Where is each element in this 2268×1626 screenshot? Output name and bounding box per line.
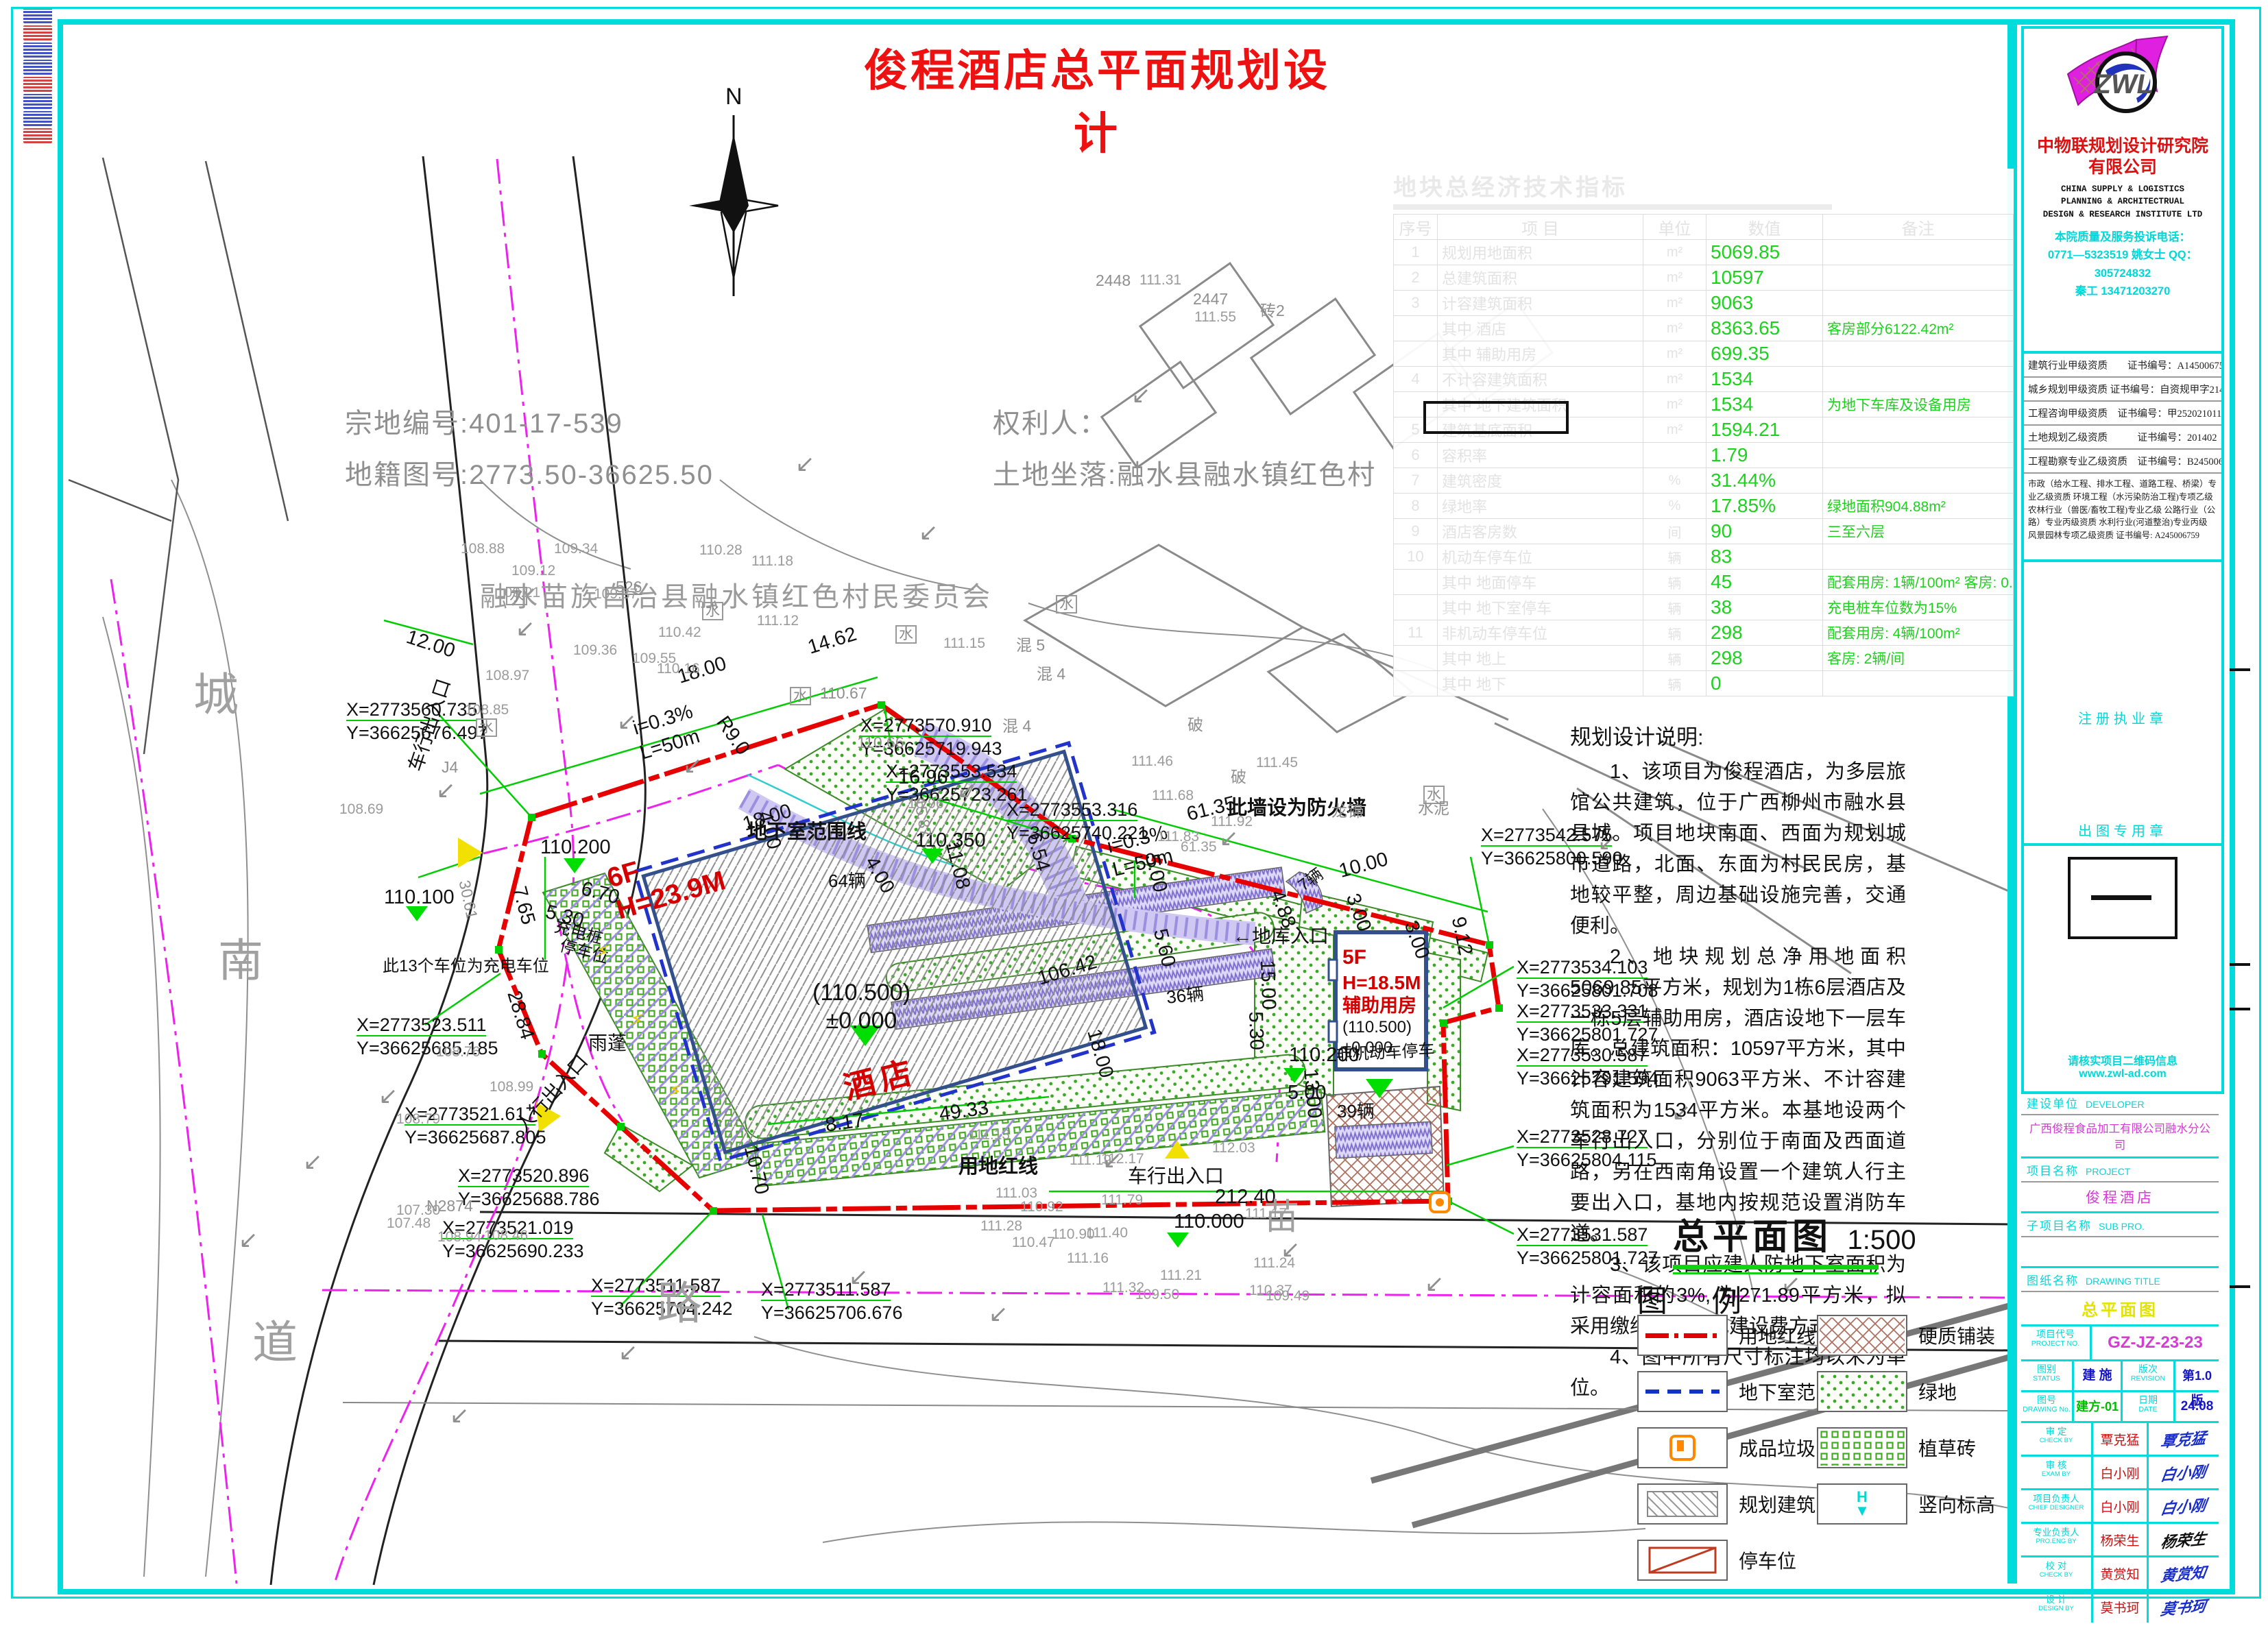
map-annotation: 18.00 bbox=[1083, 1027, 1116, 1080]
indicator-row: 3计容建筑面积m²9063 bbox=[1394, 291, 2014, 316]
building-hatch-symbol bbox=[1647, 1491, 1718, 1517]
map-annotation: 非机动车停车 bbox=[1336, 1042, 1435, 1064]
indicator-cell-item: 其中 辅助用房 bbox=[1438, 341, 1643, 367]
indicator-cell-value: 38 bbox=[1706, 595, 1823, 620]
signature-row: 审 核EXAM BY白小刚白小刚 bbox=[2021, 1457, 2219, 1490]
redline-symbol bbox=[1645, 1333, 1720, 1338]
col-header: 数值 bbox=[1706, 215, 1823, 240]
indicator-cell-no: 9 bbox=[1394, 519, 1438, 544]
indicator-cell-no: 10 bbox=[1394, 544, 1438, 570]
indicator-cell-remark bbox=[1823, 417, 2014, 443]
map-annotation: 水 bbox=[476, 718, 497, 737]
indicator-row: 9酒店客房数间90三至六层 bbox=[1394, 519, 2014, 544]
map-annotation: 109.34 bbox=[554, 542, 598, 556]
indicator-cell-remark bbox=[1823, 367, 2014, 392]
map-annotation: 用地红线 bbox=[958, 1157, 1038, 1177]
map-annotation: 此13个车位为充电车位 bbox=[383, 958, 549, 975]
indicator-cell-unit bbox=[1643, 443, 1706, 468]
legend-item-green: 绿地 bbox=[1817, 1371, 1995, 1412]
revision-value: 第1.0版 bbox=[2175, 1361, 2219, 1390]
map-annotation: 5.30 bbox=[1245, 1011, 1266, 1050]
indicator-cell-unit: 辆 bbox=[1643, 595, 1706, 620]
signature-role-label: 专业负责人PRO.ENG BY bbox=[2021, 1524, 2093, 1555]
map-annotation: ↙ bbox=[239, 1228, 258, 1252]
legend-right-column: 硬质铺装 绿地 植草砖 H ▼ 竖向标高 bbox=[1817, 1315, 1995, 1540]
signer-name: 白小刚 bbox=[2093, 1457, 2149, 1488]
indicator-cell-unit: 辆 bbox=[1643, 544, 1706, 570]
map-annotation: 14.62 bbox=[806, 624, 859, 658]
map-annotation: 109.12 bbox=[511, 563, 555, 578]
col-header: 单位 bbox=[1643, 215, 1706, 240]
indicator-cell-remark bbox=[1823, 265, 2014, 291]
credential-row: 城乡规划甲级资质 证书编号：自资规甲字21450400 bbox=[2024, 378, 2221, 402]
map-annotation: 111.18 bbox=[751, 554, 793, 568]
map-annotation: 16.96 bbox=[908, 797, 944, 811]
indicator-cell-unit: % bbox=[1643, 468, 1706, 494]
indicator-cell-value: 5069.85 bbox=[1706, 240, 1823, 265]
map-annotation: ↙ bbox=[957, 779, 977, 802]
indicator-cell-remark bbox=[1823, 341, 2014, 367]
planning-note-1: 1、该项目为俊程酒店，为多层旅馆公共建筑，位于广西柳州市融水县县城。项目地块南面… bbox=[1570, 757, 1906, 942]
map-annotation: 龙锦 bbox=[1331, 803, 1363, 819]
map-annotation: 110.28 bbox=[699, 543, 743, 557]
indicator-cell-no: 1 bbox=[1394, 240, 1438, 265]
map-annotation: 110.66 bbox=[857, 735, 904, 751]
indicator-cell-item: 建筑密度 bbox=[1438, 468, 1643, 494]
map-annotation: Y=36625690.233 bbox=[442, 1242, 583, 1261]
map-annotation: 15.00 bbox=[1257, 960, 1279, 1010]
trash-bin-symbol bbox=[1669, 1435, 1696, 1461]
map-annotation: 111.46 bbox=[1131, 754, 1173, 768]
indicator-cell-remark bbox=[1823, 443, 2014, 468]
map-annotation: ⚡ bbox=[665, 1080, 684, 1103]
indicator-cell-remark bbox=[1823, 544, 2014, 570]
credential-row: 工程勘察专业乙级资质 证书编号：B245006759 bbox=[2024, 450, 2221, 474]
indicator-cell-item: 绿地率 bbox=[1438, 494, 1643, 519]
indicator-cell-item: 不计容建筑面积 bbox=[1438, 367, 1643, 392]
signature-row: 设 计DESIGN BY莫书珂莫书珂 bbox=[2021, 1591, 2219, 1623]
indicator-cell-unit: m² bbox=[1643, 392, 1706, 417]
map-annotation: 水泥 bbox=[1418, 801, 1449, 816]
map-annotation: 110.000 bbox=[1174, 1212, 1244, 1232]
qr-note-1: 请核实项目二维码信息 bbox=[2024, 1052, 2221, 1068]
indicator-cell-no: 4 bbox=[1394, 367, 1438, 392]
map-annotation: 5.60 bbox=[1150, 927, 1179, 969]
map-annotation: 2447 bbox=[1193, 291, 1228, 307]
issue-stamp-label: 出图专用章 bbox=[2024, 820, 2221, 840]
project-name: 俊程酒店 bbox=[2021, 1182, 2219, 1211]
map-annotation: ↙ bbox=[795, 452, 815, 476]
indicator-cell-remark: 配套用房: 1辆/100m² 客房: 0.6辆/间 bbox=[1823, 570, 2014, 595]
indicator-cell-item: 非机动车停车位 bbox=[1438, 620, 1643, 646]
map-annotation: 水 bbox=[790, 687, 811, 705]
credential-row: 市政（给水工程、排水工程、道路工程、桥梁）专业乙级资质 环境工程（水污染防治工程… bbox=[2024, 474, 2221, 546]
signature-role-label: 设 计DESIGN BY bbox=[2021, 1591, 2093, 1623]
map-annotation: 地下室范围线 bbox=[747, 823, 867, 842]
map-annotation: 64辆 bbox=[828, 872, 866, 890]
map-annotation: X=2773560.735 bbox=[346, 701, 477, 721]
map-annotation: 107.48 bbox=[387, 1216, 431, 1230]
signature: 黄赏知 bbox=[2146, 1554, 2221, 1592]
map-annotation: ↙ bbox=[1425, 1272, 1445, 1296]
indicators-header-row: 序号 项 目 单位 数值 备注 bbox=[1394, 215, 2014, 240]
map-annotation: ↙ bbox=[1131, 384, 1151, 407]
map-annotation: 111.40 bbox=[1086, 1226, 1128, 1240]
indicator-cell-no bbox=[1394, 646, 1438, 671]
map-annotation: 108.69 bbox=[339, 802, 383, 816]
signature: 覃克猛 bbox=[2146, 1420, 2221, 1458]
subproject-section: 子项目名称SUB PRO. bbox=[2021, 1213, 2219, 1268]
company-block: ZWL 中物联规划设计研究院 有限公司 CHINA SUPPLY & LOGIS… bbox=[2021, 26, 2224, 354]
project-section: 项目名称PROJECT 俊程酒店 bbox=[2021, 1158, 2219, 1213]
credentials-box: 建筑行业甲级资质 证书编号：A145006752城乡规划甲级资质 证书编号：自资… bbox=[2021, 351, 2224, 562]
map-annotation: 110.37 bbox=[1249, 1283, 1292, 1298]
drawingno-date-row: 图号DRAWING No. 建方-01 日期DATE 24.08 bbox=[2021, 1392, 2219, 1423]
map-annotation: 109.21 bbox=[496, 585, 540, 600]
map-annotation: 108.94 bbox=[437, 1230, 481, 1244]
map-annotation: ↙ bbox=[450, 1404, 470, 1427]
map-annotation: 混 4 bbox=[1002, 718, 1031, 734]
map-annotation: 110.200 bbox=[540, 838, 611, 858]
legend: 图 例 用地红线 地下室范围 成品垃圾回收桶 规划建筑 停车位 bbox=[1637, 1276, 2007, 1333]
planning-note-2: 2、地块规划总净用地面积5069.85平方米，规划为1栋6层酒店及一栋5层辅助用… bbox=[1570, 942, 1906, 1250]
map-annotation: ↙ bbox=[617, 710, 637, 733]
map-annotation: 2448 bbox=[1096, 273, 1131, 289]
indicator-cell-value: 298 bbox=[1706, 620, 1823, 646]
indicator-cell-no: 3 bbox=[1394, 291, 1438, 316]
indicator-cell-remark: 为地下车库及设备用房 bbox=[1823, 392, 2014, 417]
map-annotation: 109.37 bbox=[594, 587, 638, 601]
map-annotation: 111.16 bbox=[1067, 1251, 1109, 1265]
map-annotation: 水 bbox=[702, 602, 723, 620]
indicator-cell-remark: 充电桩车位数为15% bbox=[1823, 595, 2014, 620]
map-annotation: 111.15 bbox=[943, 636, 985, 651]
map-annotation: 砖2 bbox=[1260, 303, 1285, 319]
indicator-cell-no bbox=[1394, 570, 1438, 595]
indicator-cell-unit: 辆 bbox=[1643, 570, 1706, 595]
indicator-cell-remark: 客房: 2辆/间 bbox=[1823, 646, 2014, 671]
indicator-cell-unit: 间 bbox=[1643, 519, 1706, 544]
indicator-row: 1规划用地面积m²5069.85 bbox=[1394, 240, 2014, 265]
map-annotation: 111.79 bbox=[1101, 1193, 1143, 1207]
developer-name: 广西俊程食品加工有限公司融水分公司 bbox=[2021, 1115, 2219, 1156]
indicator-row: 11非机动车停车位辆298配套用房: 4辆/100m² bbox=[1394, 620, 2014, 646]
map-annotation: 61.35 bbox=[1181, 840, 1217, 854]
indicator-cell-remark bbox=[1823, 291, 2014, 316]
map-annotation: 110.92 bbox=[1020, 1200, 1063, 1214]
map-annotation: Y=36625688.786 bbox=[458, 1190, 599, 1209]
map-annotation: X=2773520.896 bbox=[458, 1167, 589, 1187]
map-annotation: 7辆 bbox=[1296, 866, 1326, 895]
indicator-cell-unit: m² bbox=[1643, 341, 1706, 367]
indicator-cell-item: 其中 地上 bbox=[1438, 646, 1643, 671]
map-annotation: ↙ bbox=[1281, 1238, 1301, 1261]
map-annotation: 破 bbox=[1187, 717, 1203, 733]
plan-title-underline bbox=[1673, 1265, 1879, 1270]
developer-section: 建设单位DEVELOPER 广西俊程食品加工有限公司融水分公司 bbox=[2021, 1091, 2219, 1158]
map-annotation: ↙ bbox=[849, 1265, 869, 1289]
map-annotation: J4 bbox=[442, 760, 458, 775]
legend-item-elevation: H ▼ 竖向标高 bbox=[1817, 1483, 1995, 1525]
map-annotation: 110.16 bbox=[657, 662, 700, 676]
map-annotation: 111.31 bbox=[1139, 273, 1181, 287]
map-annotation: X=2773511.587 bbox=[761, 1281, 891, 1301]
map-annotation: 110.47 bbox=[1012, 1235, 1055, 1250]
indicator-row: 7建筑密度%31.44% bbox=[1394, 468, 2014, 494]
signature-role-label: 审 核EXAM BY bbox=[2021, 1457, 2093, 1488]
indicators-title-underline bbox=[1393, 204, 1832, 210]
indicator-row: 其中 地面停车辆45配套用房: 1辆/100m² 客房: 0.6辆/间 bbox=[1394, 570, 2014, 595]
project-no-section: 项目代号PROJECT NO. GZ-JZ-23-23 bbox=[2021, 1326, 2219, 1361]
signature: 白小刚 bbox=[2146, 1453, 2221, 1492]
indicator-cell-unit: m² bbox=[1643, 316, 1706, 341]
indicator-cell-value: 90 bbox=[1706, 519, 1823, 544]
map-annotation: 111.12 bbox=[757, 614, 799, 628]
map-annotation: 8.17 bbox=[824, 1111, 865, 1136]
map-annotation: 3.00 bbox=[1342, 891, 1375, 934]
map-annotation: ↙ bbox=[683, 754, 703, 777]
signature-rows: 审 定CHECK BY覃克猛覃克猛审 核EXAM BY白小刚白小刚项目负责人CH… bbox=[2021, 1423, 2219, 1623]
map-annotation: X=2773523.511 bbox=[357, 1016, 486, 1036]
map-annotation: 混 5 bbox=[1016, 638, 1045, 653]
title-block: 建设单位DEVELOPER 广西俊程食品加工有限公司融水分公司 项目名称PROJ… bbox=[2021, 1091, 2219, 1575]
map-annotation: 水 bbox=[895, 625, 917, 644]
map-annotation: ↙ bbox=[989, 1302, 1009, 1326]
map-annotation: 10.00 bbox=[1337, 849, 1390, 882]
signature: 莫书珂 bbox=[2146, 1588, 2221, 1626]
map-annotation: ↙ bbox=[303, 1150, 323, 1174]
map-annotation: 12.00 bbox=[404, 627, 457, 662]
map-annotation: 109.50 bbox=[1135, 1287, 1179, 1302]
indicator-cell-remark: 配套用房: 4辆/100m² bbox=[1823, 620, 2014, 646]
map-annotation: ↙ bbox=[1219, 827, 1239, 850]
indicator-cell-unit: 辆 bbox=[1643, 671, 1706, 696]
indicator-cell-no: 6 bbox=[1394, 443, 1438, 468]
legend-title: 图 例 bbox=[1637, 1276, 2007, 1320]
signature-row: 审 定CHECK BY覃克猛覃克猛 bbox=[2021, 1423, 2219, 1457]
qr-note-2: www.zwl-ad.com bbox=[2024, 1068, 2221, 1080]
indicator-cell-remark bbox=[1823, 468, 2014, 494]
parking-symbol bbox=[1648, 1546, 1717, 1574]
indicator-cell-unit: m² bbox=[1643, 291, 1706, 316]
map-annotation: X=2773553.316 bbox=[1006, 801, 1137, 821]
indicator-cell-item: 机动车停车位 bbox=[1438, 544, 1643, 570]
grassbrick-symbol bbox=[1820, 1430, 1905, 1466]
signature: 白小刚 bbox=[2146, 1487, 2221, 1525]
company-name-cn-2: 有限公司 bbox=[2024, 157, 2221, 178]
map-annotation: 城 bbox=[193, 672, 239, 717]
map-annotation: 111.21 bbox=[1160, 1268, 1202, 1283]
indicator-cell-no bbox=[1394, 595, 1438, 620]
signature-role-label: 校 对CHECK BY bbox=[2021, 1557, 2093, 1589]
col-header: 序号 bbox=[1394, 215, 1438, 240]
indicator-cell-value: 83 bbox=[1706, 544, 1823, 570]
indicator-cell-no: 11 bbox=[1394, 620, 1438, 646]
indicator-cell-value: 298 bbox=[1706, 646, 1823, 671]
indicator-cell-remark bbox=[1823, 240, 2014, 265]
indicator-cell-item: 其中 地下室停车 bbox=[1438, 595, 1643, 620]
indicator-cell-unit: % bbox=[1643, 494, 1706, 519]
qr-placeholder bbox=[2068, 857, 2177, 939]
company-phone: 本院质量及服务投诉电话： 0771—5323519 姚女士 QQ： 305724… bbox=[2024, 228, 2221, 301]
indicator-cell-no: 7 bbox=[1394, 468, 1438, 494]
plan-title-text: 总平面图 bbox=[1673, 1217, 1832, 1257]
map-annotation: 10.70 bbox=[740, 1143, 772, 1196]
credentials-list: 建筑行业甲级资质 证书编号：A145006752城乡规划甲级资质 证书编号：自资… bbox=[2024, 354, 2221, 546]
map-annotation: 混 4 bbox=[1037, 666, 1065, 682]
drawing-title-value: 总平面图 bbox=[2021, 1292, 2219, 1324]
map-annotation: 111.55 bbox=[1194, 310, 1236, 324]
map-annotation: R9.0 bbox=[712, 713, 753, 759]
plan-title: 总平面图 1:500 bbox=[1673, 1208, 1916, 1274]
signer-name: 白小刚 bbox=[2093, 1490, 2149, 1522]
indicator-cell-item: 其中 地面停车 bbox=[1438, 570, 1643, 595]
signature-row: 项目负责人CHIEF DESIGNER白小刚白小刚 bbox=[2021, 1490, 2219, 1524]
indicator-cell-no: 2 bbox=[1394, 265, 1438, 291]
map-annotation: 36辆 bbox=[1166, 984, 1205, 1006]
map-annotation: 111.28 bbox=[980, 1219, 1022, 1233]
map-annotation: 雨蓬 bbox=[588, 1034, 627, 1053]
col-header: 备注 bbox=[1823, 215, 2014, 240]
planning-notes-title: 规划设计说明: bbox=[1570, 721, 1906, 754]
map-annotation: 108.88 bbox=[461, 542, 505, 556]
indicator-cell-no: 8 bbox=[1394, 494, 1438, 519]
indicator-row: 其中 酒店m²8363.65客房部分6122.42m² bbox=[1394, 316, 2014, 341]
indicator-row: 10机动车停车位辆83 bbox=[1394, 544, 2014, 570]
map-annotation: 110.100 bbox=[384, 888, 455, 908]
legend-item-grassbrick: 植草砖 bbox=[1817, 1427, 1995, 1468]
subproject-name bbox=[2021, 1237, 2219, 1266]
map-annotation: 111.03 bbox=[996, 1186, 1037, 1200]
map-annotation: ←地库入口 bbox=[1233, 927, 1329, 946]
indicator-row: 其中 地下辆0 bbox=[1394, 671, 2014, 696]
map-annotation: 111.17 bbox=[1245, 1206, 1287, 1221]
indicator-cell-item: 计容建筑面积 bbox=[1438, 291, 1643, 316]
license-stamp-label: 注册执业章 bbox=[2024, 707, 2221, 727]
indicator-cell-no bbox=[1394, 341, 1438, 367]
map-annotation: 道 bbox=[252, 1320, 298, 1365]
indicator-cell-remark: 客房部分6122.42m² bbox=[1823, 316, 2014, 341]
indicator-cell-value: 1534 bbox=[1706, 392, 1823, 417]
indicator-cell-item: 酒店客房数 bbox=[1438, 519, 1643, 544]
title-block-panel: ZWL 中物联规划设计研究院 有限公司 CHINA SUPPLY & LOGIS… bbox=[2018, 21, 2223, 1582]
basement-line-symbol bbox=[1645, 1390, 1720, 1394]
indicators-title: 地块总经济技术指标 bbox=[1393, 169, 2014, 202]
map-annotation: 39辆 bbox=[1337, 1102, 1375, 1120]
map-annotation: 49.33 bbox=[938, 1098, 990, 1125]
company-name-en: CHINA SUPPLY & LOGISTICS PLANNING & ARCH… bbox=[2024, 183, 2221, 221]
map-annotation: 108.79 bbox=[396, 1112, 440, 1126]
map-annotation: 110.67 bbox=[820, 685, 867, 701]
indicator-cell-value: 1534 bbox=[1706, 367, 1823, 392]
map-annotation: 111.45 bbox=[1256, 755, 1298, 770]
plan-scale: 1:500 bbox=[1847, 1225, 1916, 1255]
map-annotation: ⚡ bbox=[627, 1009, 646, 1032]
indicator-cell-item: 总建筑面积 bbox=[1438, 265, 1643, 291]
legend-item-paving: 硬质铺装 bbox=[1817, 1315, 1995, 1356]
indicator-row: 8绿地率%17.85%绿地面积904.88m² bbox=[1394, 494, 2014, 519]
map-annotation: ↙ bbox=[516, 617, 535, 640]
indicator-cell-no bbox=[1394, 671, 1438, 696]
indicator-cell-item: 容积率 bbox=[1438, 443, 1643, 468]
company-logo: ZWL bbox=[2054, 33, 2191, 136]
map-annotation: 4.88 bbox=[1267, 888, 1299, 931]
map-annotation: 112.03 bbox=[1212, 1141, 1255, 1155]
map-annotation: 车行出入口 bbox=[1128, 1167, 1224, 1186]
map-annotation: ↙ bbox=[436, 779, 456, 802]
map-annotation: 28.84 bbox=[503, 988, 537, 1042]
map-annotation: 108.85 bbox=[465, 703, 509, 717]
signature-role-label: 审 定CHECK BY bbox=[2021, 1423, 2093, 1455]
map-annotation: 9.12 bbox=[1448, 915, 1475, 957]
company-name-cn-1: 中物联规划设计研究院 bbox=[2024, 136, 2221, 157]
map-annotation: 13.00 bbox=[1300, 1068, 1324, 1119]
map-annotation: 3.00 bbox=[1401, 919, 1433, 962]
map-annotation: ↙ bbox=[919, 521, 939, 544]
indicator-cell-unit: 辆 bbox=[1643, 646, 1706, 671]
indicator-cell-value: 699.35 bbox=[1706, 341, 1823, 367]
map-annotation: 4.00 bbox=[861, 853, 897, 897]
map-annotation: 110.42 bbox=[658, 625, 701, 640]
indicator-cell-unit: 辆 bbox=[1643, 620, 1706, 646]
indicator-cell-item: 其中 地下 bbox=[1438, 671, 1643, 696]
indicators-body: 1规划用地面积m²5069.852总建筑面积m²105973计容建筑面积m²90… bbox=[1394, 240, 2014, 696]
svg-text:ZWL: ZWL bbox=[2092, 69, 2156, 99]
drawing-title-section: 图纸名称DRAWING TITLE 总平面图 bbox=[2021, 1268, 2219, 1326]
credential-row: 建筑行业甲级资质 证书编号：A145006752 bbox=[2024, 354, 2221, 378]
green-symbol bbox=[1820, 1374, 1905, 1409]
map-annotation: 水 bbox=[1056, 595, 1077, 614]
indicator-row: 其中 辅助用房m²699.35 bbox=[1394, 341, 2014, 367]
indicator-cell-unit: m² bbox=[1643, 417, 1706, 443]
credential-row: 工程咨询甲级资质 证书编号：甲252021011160 bbox=[2024, 402, 2221, 426]
indicator-row: 4不计容建筑面积m²1534 bbox=[1394, 367, 2014, 392]
map-annotation: 破 bbox=[1231, 769, 1246, 785]
indicator-cell-remark: 绿地面积904.88m² bbox=[1823, 494, 2014, 519]
indicator-cell-value: 1594.21 bbox=[1706, 417, 1823, 443]
signer-name: 莫书珂 bbox=[2093, 1591, 2149, 1623]
map-annotation: 108.76 bbox=[436, 1045, 480, 1059]
drawing-no-value: 建方-01 bbox=[2074, 1392, 2123, 1421]
indicator-cell-value: 17.85% bbox=[1706, 494, 1823, 519]
indicator-cell-no bbox=[1394, 316, 1438, 341]
qr-line bbox=[2091, 895, 2151, 900]
indicator-row: 6容积率1.79 bbox=[1394, 443, 2014, 468]
indicator-cell-item: 其中 酒店 bbox=[1438, 316, 1643, 341]
indicator-row: 2总建筑面积m²10597 bbox=[1394, 265, 2014, 291]
map-annotation: 108.46 bbox=[484, 1228, 528, 1243]
indicator-row: 其中 地下室停车辆38充电桩车位数为15% bbox=[1394, 595, 2014, 620]
map-annotation: ↙ bbox=[618, 1341, 638, 1364]
indicator-cell-remark bbox=[1823, 671, 2014, 696]
status-value: 建 施 bbox=[2074, 1361, 2123, 1390]
signature-row: 专业负责人PRO.ENG BY杨荣生杨荣生 bbox=[2021, 1524, 2219, 1557]
map-annotation: Y=36625706.676 bbox=[761, 1304, 902, 1322]
map-annotation: 108.99 bbox=[490, 1080, 533, 1094]
signer-name: 黄赏知 bbox=[2093, 1557, 2149, 1589]
indicator-cell-value: 1.79 bbox=[1706, 443, 1823, 468]
map-annotation: 6.70 bbox=[579, 879, 621, 908]
date-value: 24.08 bbox=[2175, 1392, 2219, 1421]
col-header: 项 目 bbox=[1438, 215, 1643, 240]
map-annotation: ↙ bbox=[1102, 1149, 1122, 1172]
indicator-cell-value: 9063 bbox=[1706, 291, 1823, 316]
qr-area: 请核实项目二维码信息 www.zwl-ad.com bbox=[2021, 843, 2224, 1094]
map-annotation: 111.68 bbox=[1152, 788, 1194, 803]
indicator-cell-unit: m² bbox=[1643, 240, 1706, 265]
legend-item-parking: 停车位 bbox=[1637, 1540, 1873, 1581]
stamp-area: 注册执业章 出图专用章 bbox=[2021, 559, 2224, 846]
